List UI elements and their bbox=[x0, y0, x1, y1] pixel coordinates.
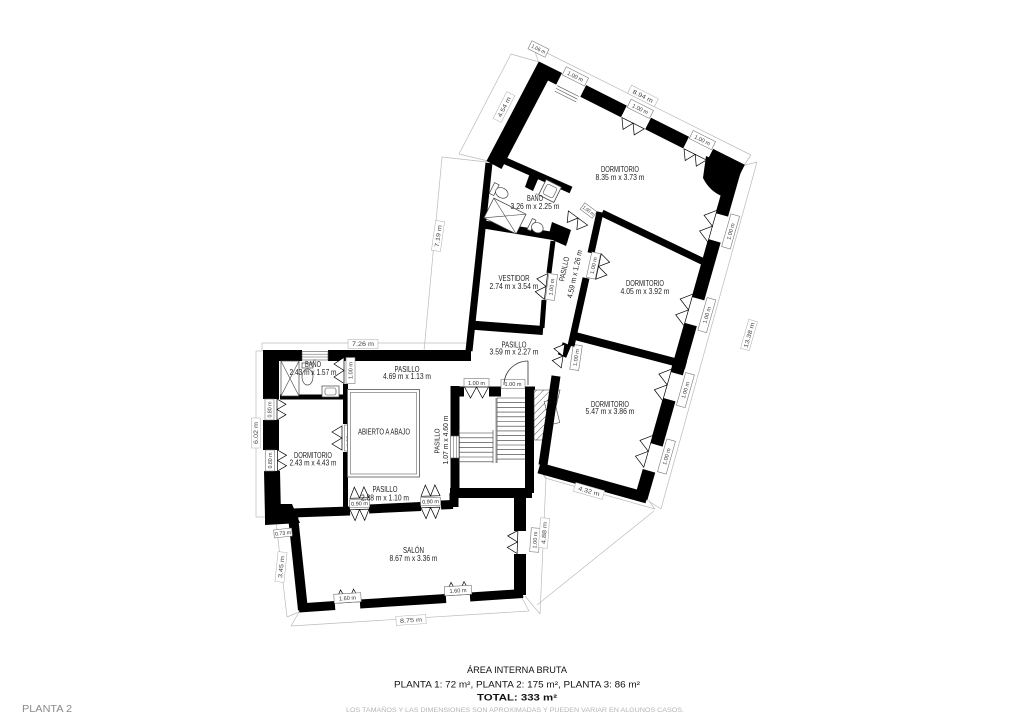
svg-text:8.67 m x 3.36 m: 8.67 m x 3.36 m bbox=[390, 554, 438, 563]
svg-text:3.26 m x 2.25 m: 3.26 m x 2.25 m bbox=[511, 202, 560, 211]
svg-text:1.00 m: 1.00 m bbox=[505, 382, 522, 388]
svg-text:2.74 m x 3.54 m: 2.74 m x 3.54 m bbox=[490, 282, 539, 291]
svg-text:3.59 m x 2.27 m: 3.59 m x 2.27 m bbox=[490, 348, 539, 357]
svg-text:1.00 m: 1.00 m bbox=[348, 361, 354, 379]
svg-text:1.60 m: 1.60 m bbox=[449, 588, 467, 595]
svg-text:PLANTA 1: 72 m², PLANTA 2: 175: PLANTA 1: 72 m², PLANTA 2: 175 m², PLANT… bbox=[394, 680, 640, 690]
svg-text:2.43 m x 1.57 m: 2.43 m x 1.57 m bbox=[290, 368, 337, 377]
svg-text:4.69 m x 1.13 m: 4.69 m x 1.13 m bbox=[383, 372, 431, 381]
svg-text:TOTAL: 333 m²: TOTAL: 333 m² bbox=[477, 693, 557, 703]
svg-text:5.47 m x 3.86 m: 5.47 m x 3.86 m bbox=[586, 407, 635, 416]
svg-text:1.07 m x 4.60 m: 1.07 m x 4.60 m bbox=[441, 416, 450, 465]
svg-text:4.05 m x 3.92 m: 4.05 m x 3.92 m bbox=[621, 287, 670, 296]
svg-text:PLANTA 2: PLANTA 2 bbox=[22, 704, 72, 715]
svg-text:ABIERTO A ABAJO: ABIERTO A ABAJO bbox=[358, 428, 410, 437]
svg-text:6.02 m: 6.02 m bbox=[254, 422, 260, 444]
svg-text:8.35 m x 3.73 m: 8.35 m x 3.73 m bbox=[596, 173, 645, 182]
svg-text:1.00 m: 1.00 m bbox=[468, 381, 485, 387]
svg-text:2.88 m x 1.10 m: 2.88 m x 1.10 m bbox=[361, 493, 409, 502]
svg-text:ÁREA INTERNA BRUTA: ÁREA INTERNA BRUTA bbox=[467, 665, 567, 675]
svg-text:0.80 m: 0.80 m bbox=[268, 452, 274, 468]
svg-text:7.26 m: 7.26 m bbox=[352, 342, 374, 348]
svg-text:0.80 m: 0.80 m bbox=[267, 401, 273, 417]
svg-text:1.60 m: 1.60 m bbox=[339, 595, 357, 602]
svg-text:0.90 m: 0.90 m bbox=[422, 499, 440, 506]
svg-text:2.43 m x 4.43 m: 2.43 m x 4.43 m bbox=[290, 459, 337, 468]
svg-text:LOS TAMAÑOS Y LAS DIMENSIONES: LOS TAMAÑOS Y LAS DIMENSIONES SON APROXI… bbox=[346, 705, 684, 714]
